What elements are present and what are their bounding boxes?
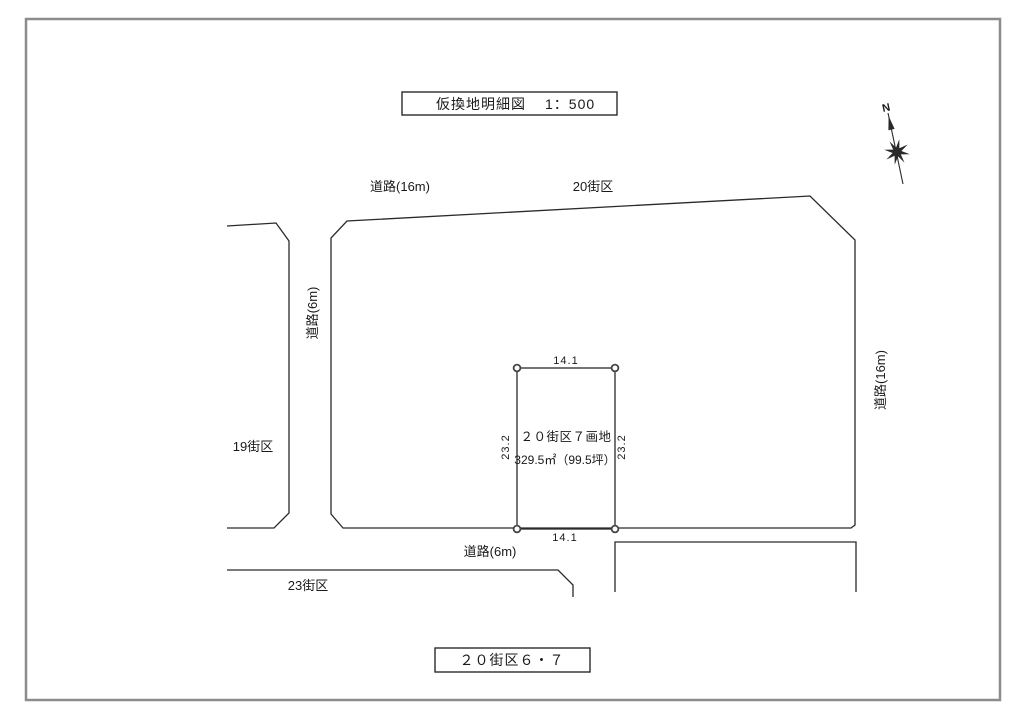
compass-star-icon [884,139,910,165]
parcel-dim-top: 14.1 [553,355,578,367]
north-label: N [881,102,891,115]
parcel-dim-left: 23.2 [500,434,512,459]
road-left-label: 道路(6m) [305,287,320,340]
parcel-corner-marker [612,526,619,533]
parcel-dim-right: 23.2 [616,434,628,459]
parcel-dim-bottom: 14.1 [552,532,577,544]
north-arrow: N [881,102,910,184]
parcel-boundary [517,368,615,529]
parcel-name-label: ２０街区７画地 [520,430,611,444]
drawing-title: 仮換地明細図 [436,96,526,112]
lower-right-block-outline [615,542,856,592]
block-20-label: 20街区 [573,179,613,194]
block-20-outline [331,196,855,528]
footer-box: ２０街区６・７ [435,648,590,672]
block-23-boundary [227,570,573,597]
north-arrow-head [888,116,894,130]
parcel-7: ２０街区７画地 329.5㎡（99.5坪） 14.1 14.1 23.2 23.… [500,355,628,544]
page-border [26,19,1000,700]
parcel-corner-marker [514,365,521,372]
survey-drawing-canvas: 仮換地明細図 1：500 N ２０街区７画地 329.5㎡（99.5坪） [0,0,1024,724]
title-box: 仮換地明細図 1：500 [402,92,617,115]
parcel-corner-marker [514,526,521,533]
scale-label: 1：500 [545,96,595,112]
road-top-label: 道路(16m) [370,179,430,194]
parcel-corner-marker [612,365,619,372]
footer-label: ２０街区６・７ [460,652,565,668]
road-right-label: 道路(16m) [873,350,888,410]
block-19-outline [227,223,289,528]
block-19-label: 19街区 [233,439,273,454]
parcel-area-label: 329.5㎡（99.5坪） [514,453,615,467]
land-replotting-map-page: 仮換地明細図 1：500 N ２０街区７画地 329.5㎡（99.5坪） [0,0,1024,724]
road-bottom-label: 道路(6m) [464,544,517,559]
block-23-label: 23街区 [288,578,328,593]
